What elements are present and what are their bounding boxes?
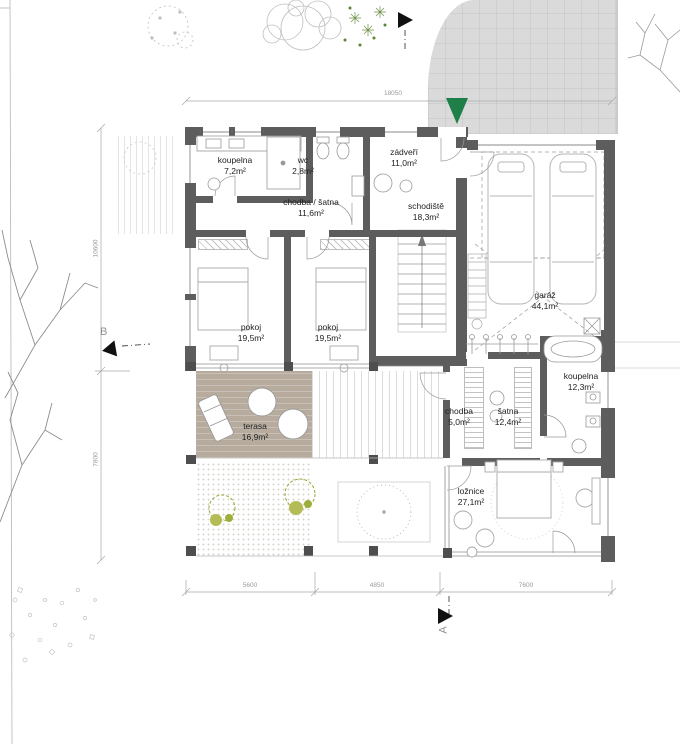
- tree-right: [628, 14, 680, 92]
- section-label-b: B: [100, 326, 107, 338]
- room-label-loznice: ložnice 27,1m²: [436, 486, 506, 508]
- room-area: 11,6m²: [266, 208, 356, 219]
- car: [550, 154, 596, 304]
- bedroom-furniture: [454, 460, 600, 557]
- room-label-pokoj-2: pokoj 19,5m²: [293, 322, 363, 344]
- room-label-zadveri: zádveří 11,0m²: [369, 147, 439, 169]
- room-area: 2,8m²: [268, 166, 338, 177]
- room-label-garaz: garáž 44,1m²: [510, 290, 580, 312]
- room-area: 19,5m²: [293, 333, 363, 344]
- tree-left-1: [2, 230, 98, 398]
- car: [488, 154, 534, 304]
- section-marker-top-icon: [398, 12, 413, 28]
- room-name: chodba / šatna: [266, 197, 356, 208]
- floor-plan: koupelna 7,2m² wc 2,8m² zádveří 11,0m² c…: [0, 0, 680, 744]
- room-name: zádveří: [369, 147, 439, 158]
- room-name: koupelna: [546, 371, 616, 382]
- entrance-arrow-icon: [446, 98, 468, 124]
- room-label-chodba-satna: chodba / šatna 11,6m²: [266, 197, 356, 219]
- bed-room1: [198, 268, 248, 372]
- room-name: wc: [268, 155, 338, 166]
- section-label-a: A: [438, 626, 450, 633]
- room-area: 27,1m²: [436, 497, 506, 508]
- room-name: koupelna: [200, 155, 270, 166]
- bushes: [209, 479, 315, 526]
- room-area: 11,0m²: [369, 158, 439, 169]
- room-name: ložnice: [436, 486, 506, 497]
- room-area: 19,5m²: [216, 333, 286, 344]
- room-area: 12,4m²: [473, 417, 543, 428]
- room-name: garáž: [510, 290, 580, 301]
- room-name: schodiště: [391, 201, 461, 212]
- dim-bottom-left: 5600: [228, 582, 272, 589]
- room-name: šatna: [473, 406, 543, 417]
- room-area: 12,3m²: [546, 382, 616, 393]
- bathroom-2-fixtures: [544, 336, 602, 453]
- columns: [186, 362, 452, 558]
- dim-top: 18050: [371, 90, 415, 97]
- room-label-wc: wc 2,8m²: [268, 155, 338, 177]
- room-label-terasa: terasa 16,9m²: [220, 421, 290, 443]
- tree-left-2: [0, 372, 62, 522]
- room-label-koupelna-2: koupelna 12,3m²: [546, 371, 616, 393]
- room-name: terasa: [220, 421, 290, 432]
- dim-bottom-right: 7600: [504, 582, 548, 589]
- room-name: pokoj: [293, 322, 363, 333]
- gravel-scatter: [10, 142, 156, 662]
- room-label-schodiste: schodiště 18,3m²: [391, 201, 461, 223]
- stairs: [398, 230, 446, 332]
- tree-circles: [263, 0, 341, 50]
- entry-furniture: [374, 174, 412, 192]
- room-area: 18,3m²: [391, 212, 461, 223]
- bush-topleft: [148, 6, 193, 48]
- room-label-koupelna-1: koupelna 7,2m²: [200, 155, 270, 177]
- dim-side-lower: 7800: [93, 438, 100, 482]
- dim-side-upper: 10600: [93, 227, 100, 271]
- courtyard-tree: [338, 482, 430, 542]
- green-plant: [344, 6, 386, 46]
- room-area: 44,1m²: [510, 301, 580, 312]
- room-name: pokoj: [216, 322, 286, 333]
- dim-bottom-center: 4850: [355, 582, 399, 589]
- room-area: 16,9m²: [220, 432, 290, 443]
- room-area: 7,2m²: [200, 166, 270, 177]
- garage-side-stair: [468, 254, 486, 329]
- section-marker-bottom-icon: [438, 608, 453, 624]
- bed-room2: [316, 268, 366, 372]
- room-label-pokoj-1: pokoj 19,5m²: [216, 322, 286, 344]
- room-label-satna: šatna 12,4m²: [473, 406, 543, 428]
